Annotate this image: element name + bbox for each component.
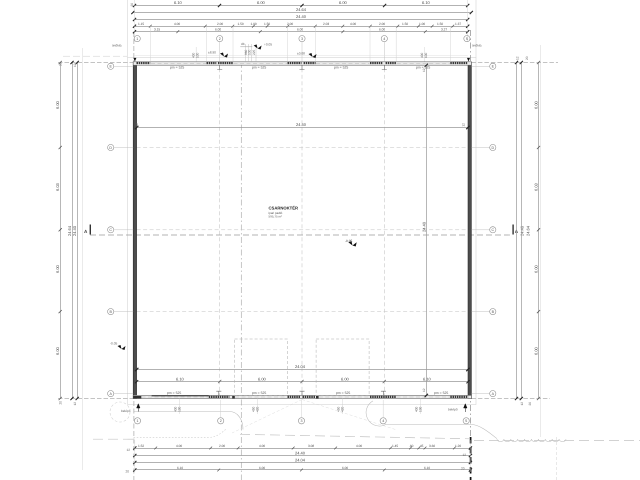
svg-text:24.40: 24.40: [296, 14, 307, 19]
svg-text:12: 12: [73, 63, 77, 67]
svg-text:6.00: 6.00: [259, 466, 265, 470]
svg-text:4.00: 4.00: [350, 22, 356, 26]
svg-text:2.00: 2.00: [379, 22, 385, 26]
svg-text:1.52: 1.52: [138, 444, 144, 448]
svg-text:12: 12: [462, 123, 466, 127]
svg-text:pm = 525: pm = 525: [336, 391, 350, 395]
svg-text:1.00: 1.00: [251, 22, 257, 26]
svg-text:±0.08: ±0.08: [297, 52, 305, 56]
svg-text:2: 2: [220, 419, 222, 423]
svg-text:.45: .45: [419, 444, 424, 448]
svg-text:3: 3: [301, 37, 303, 41]
svg-text:6.10: 6.10: [177, 466, 183, 470]
svg-text:6.00: 6.00: [257, 0, 266, 5]
svg-text:24.40: 24.40: [295, 451, 306, 456]
svg-text:.60: .60: [409, 444, 414, 448]
svg-text:pm = 525: pm = 525: [252, 391, 266, 395]
svg-text:12: 12: [127, 448, 131, 452]
svg-text:1.50: 1.50: [238, 22, 244, 26]
svg-text:24.40: 24.40: [296, 122, 307, 127]
svg-text:6.00: 6.00: [297, 28, 303, 32]
svg-text:20: 20: [59, 62, 63, 66]
svg-text:20: 20: [126, 470, 130, 474]
svg-text:+0.05: +0.05: [264, 43, 272, 47]
svg-text:1: 1: [137, 419, 139, 423]
svg-text:pm = 525: pm = 525: [434, 391, 448, 395]
svg-text:12: 12: [520, 402, 524, 406]
svg-text:12: 12: [516, 56, 520, 60]
svg-text:3: 3: [301, 419, 303, 423]
svg-text:3.60: 3.60: [429, 444, 435, 448]
svg-text:420: 420: [256, 406, 260, 412]
svg-text:4: 4: [383, 37, 385, 41]
svg-text:D: D: [491, 146, 494, 150]
svg-text:6.10: 6.10: [423, 376, 432, 381]
svg-text:6.10: 6.10: [422, 0, 431, 5]
svg-text:6.00: 6.00: [55, 264, 60, 273]
svg-text:130: 130: [419, 406, 423, 412]
svg-text:6.00: 6.00: [342, 466, 348, 470]
svg-text:1.20: 1.20: [455, 444, 461, 448]
svg-text:20: 20: [59, 401, 63, 405]
svg-text:db: db: [241, 42, 245, 46]
svg-text:12: 12: [135, 123, 139, 127]
svg-text:100: 100: [424, 52, 428, 58]
svg-text:225: 225: [252, 49, 256, 55]
svg-text:5: 5: [465, 419, 467, 423]
svg-text:12: 12: [73, 402, 77, 406]
svg-text:-0.05: -0.05: [110, 342, 117, 346]
svg-text:24.64: 24.64: [525, 225, 530, 236]
svg-text:20: 20: [461, 467, 465, 471]
svg-text:2: 2: [219, 37, 221, 41]
svg-text:20: 20: [525, 56, 529, 60]
svg-text:1.50: 1.50: [264, 22, 270, 26]
svg-text:24.40: 24.40: [72, 225, 77, 236]
svg-text:3.27: 3.27: [441, 28, 447, 32]
svg-text:6.00: 6.00: [534, 346, 539, 355]
svg-text:CSARNOKTÉR: CSARNOKTÉR: [269, 205, 299, 210]
svg-text:6.03: 6.03: [55, 182, 60, 191]
svg-text:6.00: 6.00: [215, 28, 221, 32]
svg-text:6.10: 6.10: [176, 376, 185, 381]
svg-text:6.00: 6.00: [534, 264, 539, 273]
svg-text:tetőkib.: tetőkib.: [472, 44, 482, 48]
svg-text:24.40: 24.40: [520, 225, 525, 236]
svg-text:6.00: 6.00: [341, 376, 350, 381]
svg-text:24.04: 24.04: [295, 458, 306, 463]
svg-text:C: C: [491, 228, 494, 232]
svg-text:D: D: [109, 146, 112, 150]
svg-text:6.10: 6.10: [174, 0, 183, 5]
svg-text:pm = 525: pm = 525: [167, 391, 181, 395]
svg-text:2.03: 2.03: [323, 22, 329, 26]
svg-text:130: 130: [178, 406, 182, 412]
svg-text:2.00: 2.00: [219, 444, 225, 448]
svg-text:12: 12: [463, 453, 467, 457]
svg-text:2.00: 2.00: [287, 22, 293, 26]
svg-text:1.15: 1.15: [138, 22, 144, 26]
svg-text:pm = 525: pm = 525: [334, 65, 348, 69]
svg-text:6.00: 6.00: [534, 100, 539, 109]
svg-text:6.00: 6.00: [55, 100, 60, 109]
svg-text:pm = 525: pm = 525: [416, 65, 430, 69]
svg-text:6.10: 6.10: [424, 466, 430, 470]
svg-text:4: 4: [382, 419, 384, 423]
svg-text:595,75 m²: 595,75 m²: [269, 215, 283, 219]
svg-text:20: 20: [528, 402, 532, 406]
svg-text:1.37: 1.37: [455, 22, 461, 26]
svg-text:420: 420: [341, 406, 345, 412]
svg-text:6.03: 6.03: [534, 182, 539, 191]
svg-text:1.50: 1.50: [402, 22, 408, 26]
svg-text:1: 1: [136, 37, 138, 41]
svg-text:12: 12: [422, 388, 426, 392]
svg-text:4.00: 4.00: [259, 444, 265, 448]
svg-text:6.00: 6.00: [379, 28, 385, 32]
svg-text:6.00: 6.00: [258, 376, 267, 381]
svg-text:belépő: belépő: [121, 409, 131, 413]
svg-text:4.00: 4.00: [356, 444, 362, 448]
svg-text:4.00: 4.00: [174, 22, 180, 26]
svg-text:C: C: [109, 228, 112, 232]
svg-text:5: 5: [466, 37, 468, 41]
svg-text:4.00: 4.00: [176, 444, 182, 448]
svg-text:100: 100: [196, 52, 200, 58]
svg-text:24.40: 24.40: [421, 221, 426, 232]
svg-text:1.50: 1.50: [437, 22, 443, 26]
svg-text:tetőkib.: tetőkib.: [112, 44, 122, 48]
svg-text:1.00: 1.00: [419, 22, 425, 26]
svg-text:±8.90: ±8.90: [208, 51, 216, 55]
svg-text:pm = 525: pm = 525: [170, 65, 184, 69]
svg-text:pm = 525: pm = 525: [252, 65, 266, 69]
svg-text:3.15: 3.15: [154, 28, 160, 32]
svg-text:20: 20: [130, 3, 134, 7]
svg-text:2.00: 2.00: [217, 22, 223, 26]
svg-text:6.00: 6.00: [55, 346, 60, 355]
svg-text:1.45: 1.45: [392, 444, 398, 448]
svg-text:belépő: belépő: [448, 408, 458, 412]
svg-text:3.08: 3.08: [308, 444, 314, 448]
svg-text:6.00: 6.00: [339, 0, 348, 5]
svg-text:24.04: 24.04: [295, 364, 306, 369]
svg-text:24.64: 24.64: [296, 7, 307, 12]
